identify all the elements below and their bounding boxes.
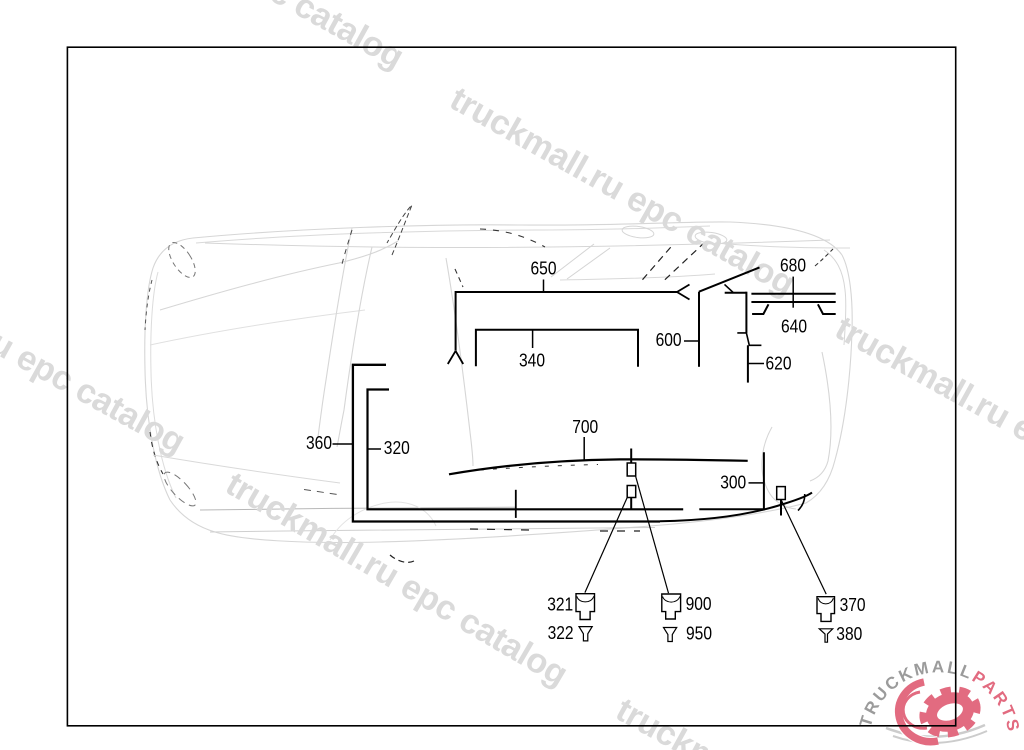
svg-text:truckmall.ru epc catalog: truckmall.ru epc catalog — [219, 465, 574, 694]
svg-text:700: 700 — [572, 417, 598, 437]
svg-text:300: 300 — [720, 473, 746, 493]
svg-text:370: 370 — [840, 595, 866, 615]
svg-text:340: 340 — [519, 350, 545, 370]
svg-text:620: 620 — [766, 353, 792, 373]
svg-text:truckmall.ru epc catalog: truckmall.ru epc catalog — [52, 0, 410, 76]
svg-text:380: 380 — [836, 624, 862, 644]
svg-text:900: 900 — [686, 594, 712, 614]
svg-text:360: 360 — [306, 433, 332, 453]
svg-text:650: 650 — [531, 258, 557, 278]
svg-text:680: 680 — [780, 256, 806, 276]
svg-text:truckmall.ru epc catalog: truckmall.ru epc catalog — [444, 80, 801, 303]
svg-text:320: 320 — [384, 438, 410, 458]
svg-text:600: 600 — [656, 330, 682, 350]
svg-text:321: 321 — [547, 595, 573, 615]
svg-text:322: 322 — [548, 623, 574, 643]
svg-text:640: 640 — [781, 317, 807, 337]
svg-text:truckmall.ru epc catalog: truckmall.ru epc catalog — [0, 240, 191, 462]
svg-text:950: 950 — [686, 624, 712, 644]
svg-text:truckmall.ru epc catalog: truckmall.ru epc catalog — [829, 309, 1024, 531]
